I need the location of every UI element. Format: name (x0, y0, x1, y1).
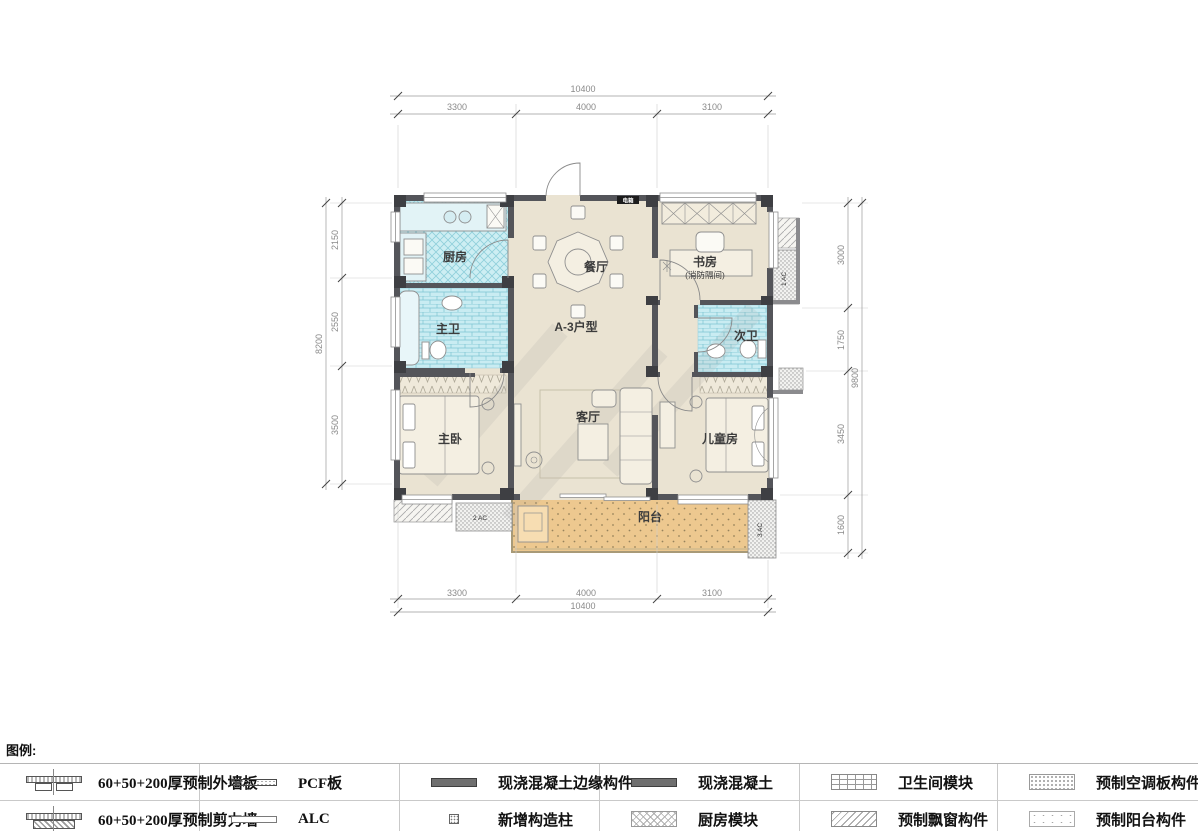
legend-symbol-cast-edge (431, 778, 477, 787)
dim-right-seg0: 3000 (836, 245, 846, 265)
dim-right-seg1: 1750 (836, 330, 846, 350)
legend-item-precast-balcony: 预制阳台构件 (998, 801, 1198, 831)
legend-item-precast-ac-panel: 预制空调板构件 (998, 764, 1198, 801)
legend-item-exterior-wall-panel: 60+50+200厚预制外墙板 (0, 764, 200, 801)
legend-item-cast-edge: 现浇混凝土边缘构件 (400, 764, 600, 801)
electrical-box-label: 电箱 (622, 197, 634, 205)
legend-label: 新增构造柱 (498, 809, 573, 830)
ac1-label: 1 AC (781, 272, 788, 286)
legend-symbol-shear-wall (26, 810, 82, 828)
dim-top-seg1: 4000 (576, 102, 596, 112)
room-label-kids: 儿童房 (701, 431, 738, 446)
dim-left-seg2: 3500 (330, 415, 340, 435)
legend-label: 卫生间模块 (898, 772, 973, 793)
legend-symbol-precast-balcony (1029, 811, 1075, 827)
entry-door-arc (546, 163, 580, 196)
legend-item-new-column: 新增构造柱 (400, 801, 600, 831)
legend-item-kitchen-module: 厨房模块 (600, 801, 800, 831)
legend-symbol-exterior-wall-panel (26, 773, 82, 791)
legend-label: 预制飘窗构件 (898, 809, 988, 830)
room-label-study-sub: (消防隔间) (685, 270, 725, 280)
dim-top-seg0: 3300 (447, 102, 467, 112)
floor-plan-svg: 厨房 餐厅 书房 (消防隔间) 主卫 次卫 A-3户型 主卧 客厅 儿童房 阳台… (0, 0, 1198, 740)
legend-item-bathroom-module: 卫生间模块 (800, 764, 998, 801)
dim-bottom-total: 10400 (570, 601, 595, 611)
legend-label: 预制空调板构件 (1096, 772, 1198, 793)
legend-symbol-kitchen-module (631, 811, 677, 827)
legend-item-precast-bay-window: 预制飘窗构件 (800, 801, 998, 831)
dim-left-seg1: 2550 (330, 312, 340, 332)
ac3-label: 3 AC (757, 523, 764, 537)
ac2-label: 2 AC (473, 515, 487, 522)
legend-label: 厨房模块 (698, 809, 758, 830)
dim-bottom-seg1: 4000 (576, 588, 596, 598)
kids-wardrobe (700, 377, 768, 393)
legend: 图例: 60+50+200厚预制外墙板 PCF板 现浇混凝土边缘构件 现浇混凝土… (0, 738, 1198, 831)
legend-label: 预制阳台构件 (1096, 809, 1186, 830)
dim-right-seg2: 3450 (836, 424, 846, 444)
legend-label: 现浇混凝土 (698, 772, 773, 793)
legend-symbol-cast-concrete (631, 778, 677, 787)
legend-label: ALC (298, 811, 330, 828)
legend-symbol-new-column (449, 814, 459, 824)
dim-left-total: 8200 (314, 334, 324, 354)
dim-left-seg0: 2150 (330, 230, 340, 250)
legend-symbol-bathroom-module (831, 774, 877, 790)
legend-symbol-precast-bay-window (831, 811, 877, 827)
room-label-living: 客厅 (575, 409, 600, 424)
room-label-balcony: 阳台 (638, 509, 662, 524)
room-label-study: 书房 (693, 254, 717, 269)
dim-right-total: 9800 (850, 368, 860, 388)
dim-top-total: 10400 (570, 84, 595, 94)
dim-right-seg3: 1600 (836, 515, 846, 535)
unit-type-label: A-3户型 (554, 319, 597, 334)
legend-item-alc: ALC (200, 801, 400, 831)
legend-item-pcf-panel: PCF板 (200, 764, 400, 801)
room-label-kitchen: 厨房 (443, 249, 467, 264)
legend-title: 图例: (0, 738, 1198, 763)
legend-item-cast-concrete: 现浇混凝土 (600, 764, 800, 801)
drawing-sheet: 厨房 餐厅 书房 (消防隔间) 主卫 次卫 A-3户型 主卧 客厅 儿童房 阳台… (0, 0, 1198, 831)
legend-symbol-precast-ac-panel (1029, 774, 1075, 790)
legend-symbol-pcf-panel (231, 779, 277, 786)
dim-top-seg2: 3100 (702, 102, 722, 112)
dim-bottom-seg2: 3100 (702, 588, 722, 598)
legend-symbol-alc (231, 816, 277, 823)
legend-grid: 60+50+200厚预制外墙板 PCF板 现浇混凝土边缘构件 现浇混凝土 卫生间… (0, 763, 1198, 831)
dim-bottom-seg0: 3300 (447, 588, 467, 598)
room-label-second-bath: 次卫 (734, 328, 758, 343)
room-label-master-bath: 主卫 (436, 321, 460, 336)
room-label-master-bedroom: 主卧 (438, 431, 462, 446)
legend-item-shear-wall: 60+50+200厚预制剪力墙 (0, 801, 200, 831)
master-wardrobe (400, 375, 506, 393)
legend-label: PCF板 (298, 772, 342, 793)
room-label-dining: 餐厅 (584, 259, 608, 274)
